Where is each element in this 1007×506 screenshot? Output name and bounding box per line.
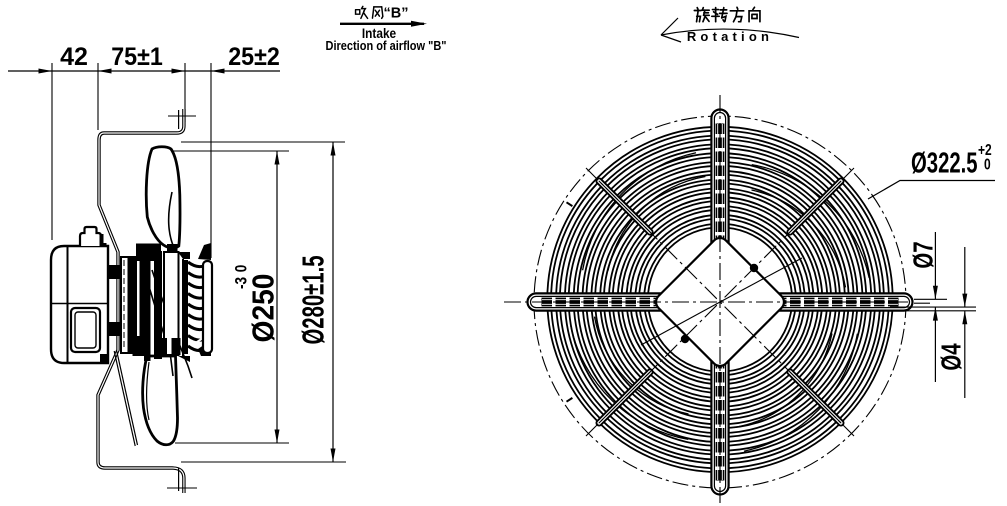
svg-text:Ø322.5: Ø322.5	[911, 147, 978, 179]
svg-text:0: 0	[232, 265, 251, 273]
svg-text:Ø7: Ø7	[909, 241, 940, 268]
svg-text:Direction of airflow "B": Direction of airflow "B"	[326, 39, 447, 53]
svg-text:“B”: “B”	[384, 6, 409, 22]
svg-text:75±1: 75±1	[111, 43, 163, 71]
svg-text:0: 0	[984, 155, 991, 173]
svg-text:Ø4: Ø4	[937, 343, 968, 371]
svg-text:Ø250: Ø250	[246, 274, 281, 343]
svg-text:Ø280±1.5: Ø280±1.5	[295, 256, 330, 345]
svg-text:25±2: 25±2	[228, 43, 280, 71]
svg-text:42: 42	[60, 43, 88, 71]
svg-text:-3: -3	[232, 277, 251, 289]
svg-text:Rotation: Rotation	[687, 29, 773, 44]
